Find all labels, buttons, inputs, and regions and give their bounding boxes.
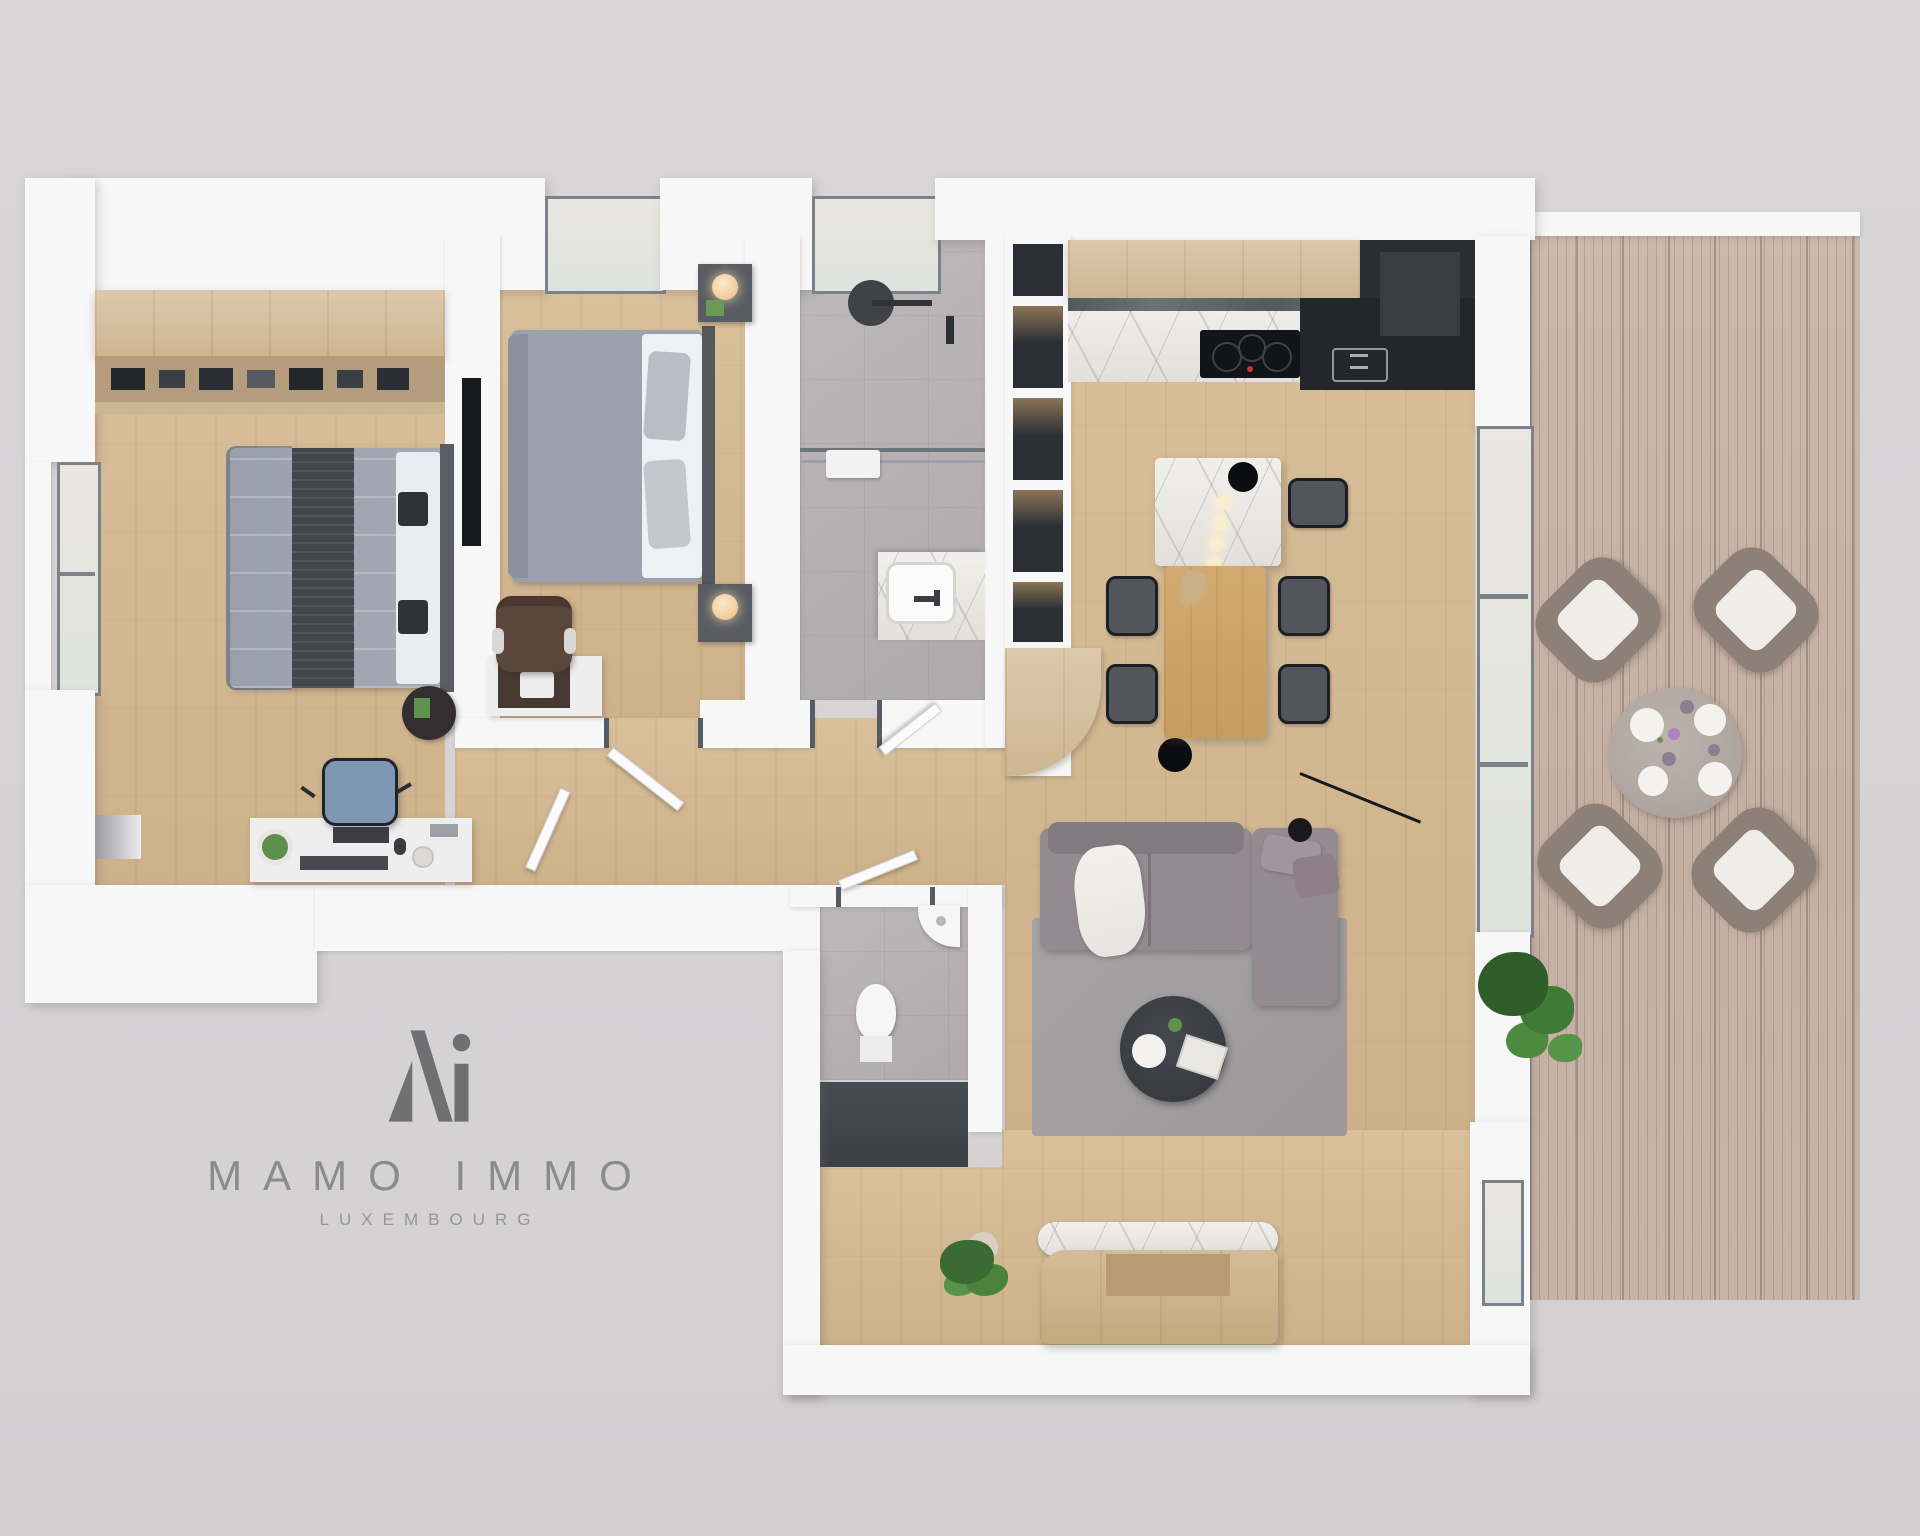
toilet-tank bbox=[860, 1036, 892, 1062]
wardrobe-top bbox=[95, 290, 445, 356]
terrace-cup bbox=[1708, 744, 1720, 756]
hob-indicator bbox=[1247, 366, 1253, 372]
terrace-plate bbox=[1630, 708, 1664, 742]
bedroom1-window bbox=[57, 462, 101, 696]
wardrobe-clothes bbox=[377, 368, 409, 390]
living-glass-mullion bbox=[1477, 762, 1528, 767]
hall-shelf-cubby bbox=[1013, 244, 1063, 296]
wardrobe-clothes bbox=[159, 370, 185, 388]
bed1-headboard bbox=[440, 444, 454, 692]
bed2-headboard bbox=[702, 326, 715, 586]
wall-top-right bbox=[935, 178, 1535, 240]
towel-on-rail bbox=[826, 450, 880, 478]
sofa-seat-seam bbox=[1148, 854, 1151, 946]
wardrobe-clothes bbox=[111, 368, 145, 390]
terrace-plate bbox=[1698, 762, 1732, 796]
desk-tray bbox=[430, 824, 458, 837]
living-glass-mullion bbox=[1477, 594, 1528, 599]
terrace-cup bbox=[1680, 700, 1694, 714]
vanity-basin bbox=[886, 562, 956, 624]
kitchen-sink-faucet bbox=[1350, 366, 1368, 369]
terrace-flower bbox=[1668, 728, 1680, 740]
pendant-light-bottom bbox=[1158, 738, 1192, 772]
floor-lamp-head bbox=[1288, 818, 1312, 842]
bed1-cushion bbox=[398, 492, 428, 526]
wall-bathroom-right bbox=[985, 236, 1005, 748]
terrace-cup bbox=[1662, 752, 1676, 766]
dining-chair bbox=[1278, 664, 1330, 724]
door-threshold bbox=[604, 718, 609, 748]
logo-title: MAMO IMMO bbox=[150, 1152, 710, 1200]
entry-door-glass bbox=[1482, 1180, 1524, 1306]
desk-plant bbox=[262, 834, 288, 860]
living-glass-wall bbox=[1477, 426, 1534, 938]
hall-wall-seg2 bbox=[700, 700, 812, 748]
terrace-table bbox=[1608, 688, 1742, 818]
bed2-pillow-gray bbox=[643, 459, 691, 550]
dining-chair bbox=[1288, 478, 1348, 528]
door-threshold bbox=[877, 700, 882, 748]
desk-laptop bbox=[300, 856, 388, 870]
wall-entry-left bbox=[783, 951, 820, 1395]
hall-wall-seg1 bbox=[455, 718, 608, 748]
logo: MAMO IMMO LUXEMBOURG bbox=[150, 1020, 710, 1260]
wc-sink-drain bbox=[936, 916, 946, 926]
dining-chair bbox=[1106, 664, 1158, 724]
wardrobe-shelves bbox=[95, 356, 445, 402]
armchair-armrest bbox=[564, 628, 576, 654]
wardrobe-clothes bbox=[199, 368, 233, 390]
bedroom1-window-rail bbox=[57, 572, 95, 576]
floor-plan: MAMO IMMO LUXEMBOURG bbox=[0, 0, 1920, 1536]
armchair-brown bbox=[496, 596, 572, 672]
sofa-cushion bbox=[1291, 853, 1340, 899]
wc-storage-closet bbox=[820, 1082, 968, 1167]
toilet-bowl bbox=[856, 984, 896, 1040]
bedroom2-wall-tv bbox=[462, 378, 481, 546]
hob-burner bbox=[1238, 334, 1266, 362]
terrace-top-wall bbox=[1530, 212, 1860, 236]
wall-bottom-mid bbox=[315, 885, 820, 951]
hall-shelf-cubby bbox=[1013, 398, 1063, 480]
wall-left-upper bbox=[25, 178, 95, 462]
bedroom2-top-window bbox=[545, 196, 666, 294]
bed2-pillow-gray bbox=[643, 351, 691, 442]
wall-left-ledge bbox=[25, 462, 51, 690]
vanity-faucet bbox=[934, 590, 940, 606]
wall-left-lower bbox=[25, 690, 95, 890]
office-chair-blue bbox=[322, 758, 398, 826]
wall-wc-right bbox=[968, 885, 1002, 1132]
bedroom2-desk-pad bbox=[520, 672, 554, 698]
nightstand-lamp bbox=[712, 274, 738, 300]
hob-burner bbox=[1262, 342, 1292, 372]
door-threshold bbox=[698, 718, 703, 748]
wardrobe-clothes bbox=[289, 368, 323, 390]
kitchen-corner-box bbox=[1380, 252, 1460, 336]
terrace-plate bbox=[1694, 704, 1726, 736]
terrace-plant bbox=[1478, 952, 1548, 1016]
dining-chair bbox=[1278, 576, 1330, 636]
wall-bedroom2-bathroom bbox=[745, 236, 800, 718]
door-threshold bbox=[930, 887, 935, 907]
nightstand-lamp bbox=[712, 594, 738, 620]
desk-keyboard bbox=[333, 827, 389, 843]
shower-handheld bbox=[946, 316, 954, 344]
wall-niche bbox=[95, 815, 141, 859]
bed2-duvet-edge bbox=[508, 334, 528, 578]
coffee-table-plate bbox=[1132, 1034, 1166, 1068]
desk-mouse bbox=[394, 838, 406, 855]
wall-entry-bottom bbox=[783, 1345, 1530, 1395]
side-table-green-card bbox=[414, 698, 430, 718]
wardrobe-clothes bbox=[247, 370, 275, 388]
kitchen-upper-cabinets bbox=[1068, 240, 1360, 298]
coffee-table-bowl bbox=[1168, 1018, 1182, 1032]
nightstand-book bbox=[706, 300, 724, 316]
wall-right-top bbox=[1475, 236, 1530, 426]
bed1-runner bbox=[292, 448, 354, 688]
hall-shelf-cubby bbox=[1013, 582, 1063, 642]
wall-bottom-left-block bbox=[25, 885, 317, 1003]
kitchen-sink-faucet bbox=[1350, 354, 1368, 357]
hall-shelf-cubby bbox=[1013, 306, 1063, 388]
desk-glass bbox=[412, 846, 434, 868]
dining-chair bbox=[1106, 576, 1158, 636]
wardrobe-shelf-edge bbox=[95, 402, 445, 414]
shower-arm bbox=[872, 300, 932, 306]
wardrobe-clothes bbox=[337, 370, 363, 388]
terrace-plate bbox=[1638, 766, 1668, 796]
entry-bench-inset bbox=[1106, 1254, 1230, 1296]
armchair-armrest bbox=[492, 628, 504, 654]
door-threshold bbox=[810, 700, 815, 748]
bed1-cushion bbox=[398, 600, 428, 634]
bathroom-top-window bbox=[812, 196, 941, 294]
logo-mark bbox=[386, 1026, 472, 1126]
door-threshold bbox=[836, 887, 841, 907]
pendant-light-top bbox=[1228, 462, 1258, 492]
hall-shelf-cubby bbox=[1013, 490, 1063, 572]
bed1-pillows bbox=[396, 452, 440, 684]
logo-subtitle: LUXEMBOURG bbox=[150, 1210, 710, 1230]
sofa-backrest bbox=[1048, 822, 1244, 854]
